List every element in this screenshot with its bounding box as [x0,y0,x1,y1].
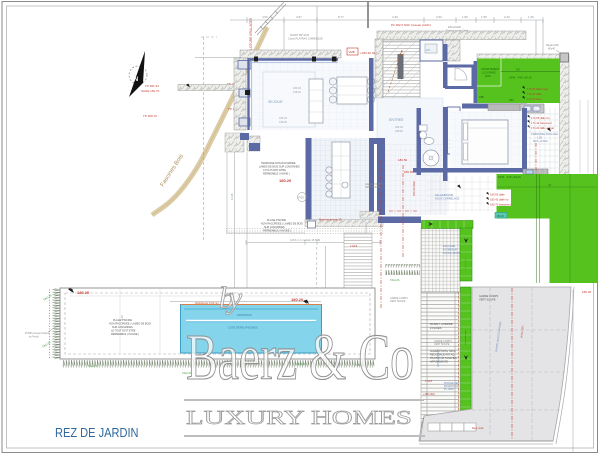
svg-text:VERT SOUPE: VERT SOUPE [434,343,450,346]
svg-text:17x18: 17x18 [350,244,358,248]
svg-text:183.18: 183.18 [279,116,287,120]
svg-text:VERT SOUPE: VERT SOUPE [365,186,381,189]
svg-text:180.50: 180.50 [398,158,408,162]
svg-text:GARDE CORPS: GARDE CORPS [479,294,498,298]
svg-text:SEJOUR: SEJOUR [268,100,283,104]
svg-text:Muret souterrain 2F: Muret souterrain 2F [319,218,342,222]
svg-text:MARGELLE VOIR det: MARGELLE VOIR det [195,302,219,305]
svg-text:SAGE 181.70: SAGE 181.70 [141,89,160,93]
svg-text:168.20: 168.20 [395,129,403,133]
svg-text:4.46: 4.46 [121,315,124,320]
svg-text:WC: WC [426,48,430,52]
svg-text:LUXURY HOMES: LUXURY HOMES [186,407,412,429]
svg-text:Regard EP: Regard EP [546,43,559,47]
svg-text:4.46: 4.46 [392,15,398,19]
svg-text:DOUX CARRELAGE: DOUX CARRELAGE [435,197,459,201]
svg-text:AVANT MP 40.B: AVANT MP 40.B [290,33,309,37]
svg-text:180.20 NGF: 180.20 NGF [465,257,467,270]
svg-text:TP 181.34: TP 181.34 [145,84,159,88]
svg-text:180.20: 180.20 [582,290,592,294]
svg-text:2.42: 2.42 [504,15,510,19]
svg-text:1846 - 445 +60.20: 1846 - 445 +60.20 [509,76,532,80]
svg-text:40x40: 40x40 [548,47,556,51]
svg-text:168.20: 168.20 [293,90,301,94]
svg-text:TALUS: TALUS [390,278,399,282]
svg-text:Coect PLATRAS CHIMNIQUE: Coect PLATRAS CHIMNIQUE [288,37,323,41]
svg-text:by: by [219,280,242,315]
svg-text:PERMEABLE ( HAGNE ): PERMEABLE ( HAGNE ) [111,333,139,336]
svg-text:180.20: 180.20 [291,297,304,302]
svg-text:V/B: V/B [479,95,484,99]
svg-text:P2 182.0 NGF (reseau public): P2 182.0 NGF (reseau public) [391,23,431,27]
svg-text:ESCALIER: ESCALIER [448,25,461,29]
svg-text:170.05 dalle bo: 170.05 dalle bo [531,116,550,120]
svg-text:VERT SOUPE: VERT SOUPE [390,300,406,303]
svg-text:+180 NGF: +180 NGF [423,392,435,396]
svg-text:8.77: 8.77 [338,15,344,19]
svg-text:P25: P25 [299,196,305,200]
svg-text:170.20 dalle art gar: 170.20 dalle art gar [531,126,554,130]
svg-text:CHEMINEMENT: CHEMINEMENT [465,328,467,345]
svg-text:1.20: 1.20 [537,136,543,140]
svg-text:SALLE/BASSIN: SALLE/BASSIN [435,193,453,197]
svg-text:2 FACES: 2 FACES [430,326,442,330]
svg-text:ARPIDAMENTE: ARPIDAMENTE [430,361,448,364]
svg-text:ENTREE: ENTREE [389,118,404,122]
svg-text:180.20: 180.20 [279,178,292,183]
svg-text:168.20: 168.20 [279,120,287,124]
svg-text:180.42 dalle bo: 180.42 dalle bo [490,198,509,202]
svg-text:ACCES JARDIN: ACCES JARDIN [443,252,462,255]
svg-text:TP 180.70: TP 180.70 [143,114,157,118]
svg-text:N: N [134,76,139,83]
svg-text:180.70 basament: 180.70 basament [490,203,511,207]
svg-text:PMR: PMR [485,75,491,78]
svg-text:CLOTURE GRILLAGEE: CLOTURE GRILLAGEE [249,18,253,52]
svg-text:Baerz & Co: Baerz & Co [186,321,414,394]
svg-text:183.18: 183.18 [293,86,301,90]
svg-text:au Perth): au Perth) [29,336,39,339]
svg-text:180.05 dalle: 180.05 dalle [490,193,505,197]
svg-text:PERMEABLE ( HAGNE ): PERMEABLE ( HAGNE ) [263,230,291,233]
svg-text:1846 - 445 +60.20: 1846 - 445 +60.20 [498,175,521,179]
svg-text:180.50: 180.50 [404,170,414,174]
svg-text:170.42 basament: 170.42 basament [531,121,552,125]
svg-text:170.05 dalle begr: 170.05 dalle begr [527,87,548,91]
svg-text:REZ DE JARDIN: REZ DE JARDIN [55,425,139,440]
svg-text:4.97: 4.97 [296,15,302,19]
svg-text:126.6 m 1 module 15.50M: 126.6 m 1 module 15.50M [290,238,320,242]
svg-text:180.20 NGF: 180.20 NGF [412,180,416,196]
svg-text:PL JARD: PL JARD [444,388,454,391]
svg-text:1.55: 1.55 [481,15,487,19]
svg-text:170.70 terre: 170.70 terre [527,97,542,101]
svg-text:1.46: 1.46 [528,15,534,19]
svg-text:Regr verte: Regr verte [472,427,484,430]
svg-text:183.18: 183.18 [395,125,403,129]
svg-text:170.42 dalle: 170.42 dalle [527,92,542,96]
svg-text:180.20: 180.20 [497,215,505,218]
svg-text:PERMEABLE ( HAINE ): PERMEABLE ( HAINE ) [263,173,290,176]
svg-text:VERT SOUPE: VERT SOUPE [479,298,496,302]
svg-text:2.60: 2.60 [436,15,442,19]
svg-text:17x18: 17x18 [425,379,433,383]
svg-text:VMB: VMB [349,50,355,54]
svg-text:V11: V11 [509,98,514,102]
svg-text:180.20: 180.20 [77,290,90,295]
svg-text:9.6: 9.6 [516,68,520,72]
svg-text:MAX +0.60m: MAX +0.60m [533,139,548,143]
svg-text:12.46: 12.46 [230,193,234,200]
svg-text:4.50: 4.50 [262,15,268,19]
svg-text:1.80: 1.80 [462,15,468,19]
svg-text:TERRASSE PAILLAGE: TERRASSE PAILLAGE [531,132,558,136]
svg-text:TALUS: TALUS [88,364,97,368]
